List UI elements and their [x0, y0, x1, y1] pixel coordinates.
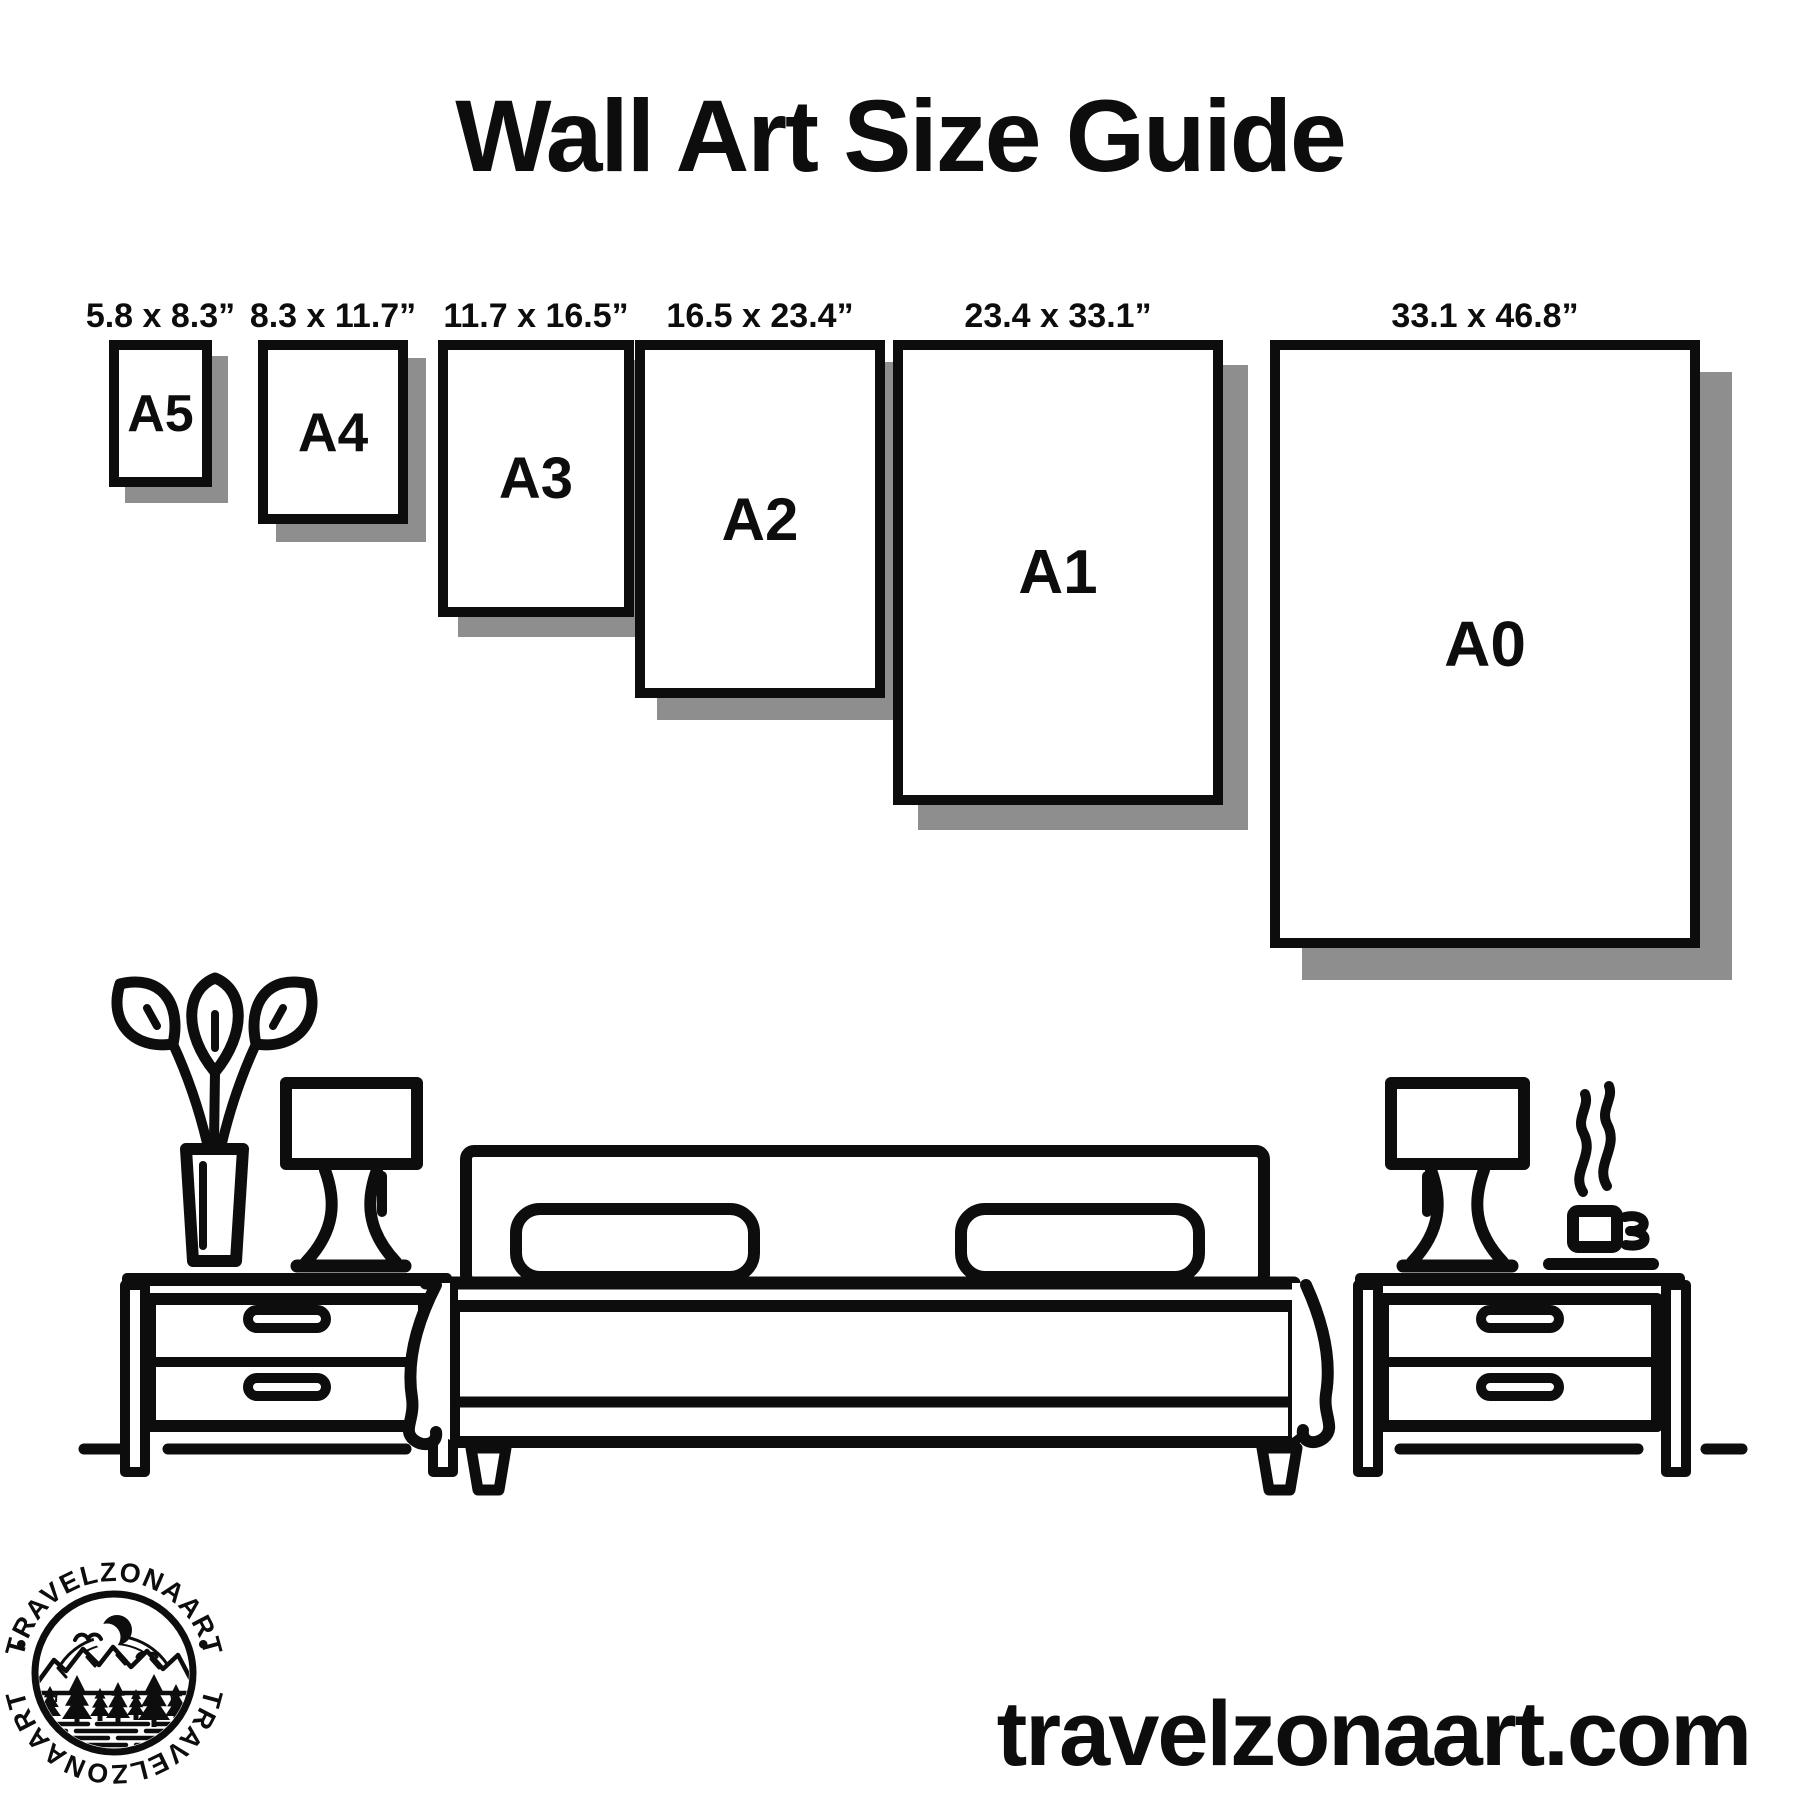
bed: [409, 1151, 1329, 1490]
drawer-handle: [248, 1378, 326, 1396]
frame-dimensions-label: 11.7 x 16.5”: [443, 297, 628, 336]
poster-frame-a2: A2: [635, 340, 885, 698]
poster-frame-a1: A1: [893, 340, 1223, 805]
drawer-handle: [248, 1310, 326, 1328]
badge-dot: •: [16, 1628, 28, 1661]
frame-code-label: A1: [1018, 537, 1097, 608]
poster-frame-a5: A5: [109, 340, 212, 487]
bed-foot: [1262, 1448, 1297, 1490]
frame-code-label: A2: [722, 485, 799, 554]
nightstand-left: [122, 1273, 453, 1472]
poster-frame-a0: A0: [1270, 340, 1700, 948]
frame-dimensions-label: 5.8 x 8.3”: [86, 297, 235, 336]
frame-code-label: A3: [499, 445, 573, 512]
nightstand-right: [1355, 1273, 1686, 1472]
frame-code-label: A0: [1444, 607, 1526, 681]
frame-dimensions-label: 23.4 x 33.1”: [964, 297, 1151, 336]
poster-frame-a3: A3: [438, 340, 634, 617]
frame-dimensions-label: 8.3 x 11.7”: [250, 297, 416, 336]
badge-dot: •: [198, 1628, 210, 1661]
coffee-cup-icon: [1549, 1086, 1653, 1264]
page-title: Wall Art Size Guide: [0, 78, 1800, 195]
bed-base: [454, 1306, 1294, 1442]
pillow: [961, 1209, 1199, 1277]
website-link: travelzonaart.com: [997, 1682, 1750, 1787]
drawer-handle: [1481, 1378, 1559, 1396]
bed-foot: [471, 1448, 506, 1490]
table-lamp-left-icon: [286, 1083, 417, 1266]
frame-code-label: A4: [298, 400, 368, 464]
table-lamp-right-icon: [1391, 1083, 1524, 1266]
bedroom-illustration: [0, 870, 1800, 1500]
frame-dimensions-label: 16.5 x 23.4”: [666, 297, 853, 336]
frame-dimensions-label: 33.1 x 46.8”: [1391, 297, 1578, 336]
drawer-handle: [1481, 1310, 1559, 1328]
pillow: [516, 1209, 754, 1277]
brand-logo-badge: TRAVELZONAART TRAVELZONAART • •: [0, 1540, 240, 1800]
frame-code-label: A5: [127, 384, 193, 444]
poster-frame-a4: A4: [258, 340, 408, 524]
